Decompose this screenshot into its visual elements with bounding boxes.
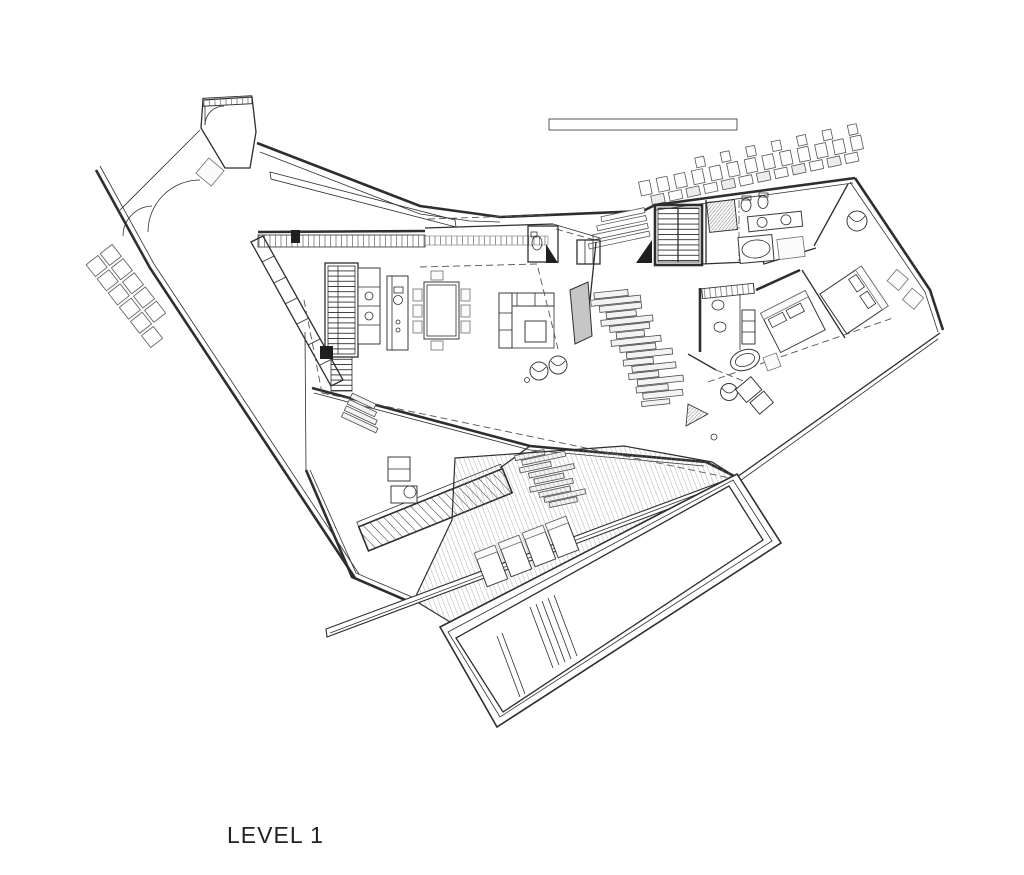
floor-plan-page: LEVEL 1 xyxy=(0,0,1024,875)
hatch-wedge xyxy=(686,404,708,426)
toilet xyxy=(758,196,768,209)
toilet xyxy=(714,322,726,332)
column xyxy=(291,230,300,243)
bedroom-2 xyxy=(688,270,845,386)
master-bath xyxy=(707,193,806,263)
ne-terrace xyxy=(847,211,867,231)
kitchen-appliances xyxy=(358,268,380,344)
round-lounge-chair xyxy=(847,211,867,231)
entry-door-leaf xyxy=(636,240,652,263)
level-label: LEVEL 1 xyxy=(227,822,324,848)
stair-column xyxy=(320,346,333,359)
kitchen-island xyxy=(387,276,408,350)
stool xyxy=(763,353,781,371)
dining-table xyxy=(424,282,459,339)
interior-stair xyxy=(320,263,358,391)
left-paver-row xyxy=(86,244,177,347)
skylight-bar xyxy=(549,119,737,130)
floor-plan-drawing: LEVEL 1 xyxy=(0,0,1024,875)
nightstand xyxy=(887,269,908,290)
nightstand xyxy=(902,288,923,309)
round-chair xyxy=(721,384,738,401)
window-band xyxy=(702,283,755,298)
bench xyxy=(777,236,805,259)
outdoor-kitchen xyxy=(388,457,417,503)
round-chair xyxy=(549,356,567,374)
sofa-group xyxy=(499,293,567,383)
toilet xyxy=(741,199,751,212)
garden-steps-upper xyxy=(590,285,686,411)
living-window-band xyxy=(425,236,548,245)
soaking-tub xyxy=(727,345,762,374)
round-chair xyxy=(530,362,548,380)
bathtub xyxy=(738,235,774,264)
dining-set xyxy=(413,271,470,350)
toilet xyxy=(712,300,724,310)
fireplace-wall xyxy=(570,282,592,344)
kitchen-window-band xyxy=(258,235,425,247)
gate-paver xyxy=(196,158,224,186)
ottoman xyxy=(525,321,546,342)
entry-gate xyxy=(123,96,256,236)
entry-stair xyxy=(655,205,702,265)
terrace-lounge xyxy=(711,377,773,440)
entry-door-leaf xyxy=(546,244,558,263)
shower xyxy=(707,200,738,233)
court-entry-steps xyxy=(341,393,386,433)
gate-door-arc xyxy=(148,180,200,232)
